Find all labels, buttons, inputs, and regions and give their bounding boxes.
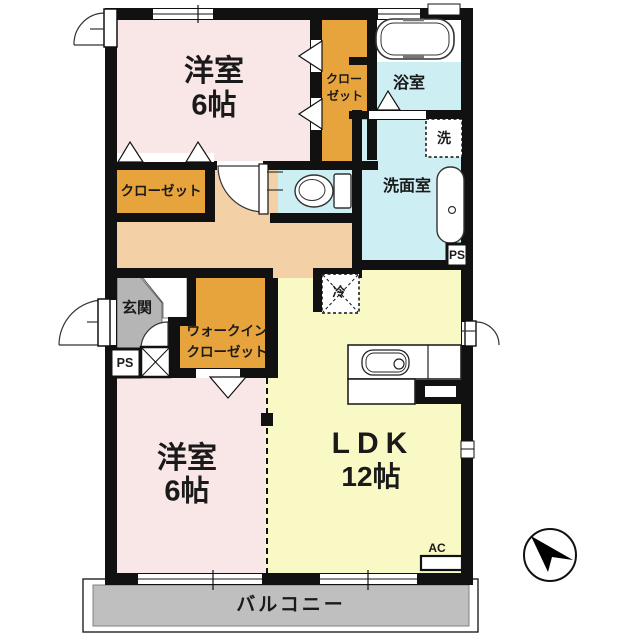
refrigerator-label: 冷 bbox=[332, 286, 345, 299]
wic-label-2: クローゼット bbox=[187, 345, 268, 359]
bedroom-top-label: 洋室 bbox=[184, 57, 244, 87]
toilet bbox=[295, 174, 351, 208]
bath-window bbox=[428, 4, 460, 15]
closet-top-label-1: クロー bbox=[326, 73, 362, 85]
bedroom-bottom-label: 洋室 bbox=[157, 444, 217, 474]
ac-label: AC bbox=[428, 542, 445, 554]
bathtub bbox=[376, 19, 454, 59]
north-arrow-icon bbox=[524, 529, 576, 581]
bath-label: 浴室 bbox=[393, 76, 425, 92]
kitchen-counter bbox=[348, 345, 461, 404]
laundry-label: 洗 bbox=[437, 131, 451, 145]
ldk-floor bbox=[265, 278, 461, 573]
floorplan-page: 洋室 6帖 クロー ゼット 浴室 洗 洗面室 クローゼット 玄関 PS PS ウ… bbox=[0, 0, 640, 640]
shoe-cabinet bbox=[141, 347, 170, 377]
ldk-size: 12帖 bbox=[341, 463, 400, 491]
bedroom-bottom-size: 6帖 bbox=[164, 478, 209, 507]
closet-top-label-2: ゼット bbox=[327, 90, 363, 102]
balcony-label: バルコニー bbox=[236, 596, 346, 615]
vanity-sink bbox=[437, 167, 464, 243]
wic-label-1: ウォークイン bbox=[187, 324, 268, 338]
ldk-floor-notch bbox=[362, 270, 461, 278]
bedroom-top-size: 6帖 bbox=[191, 92, 236, 121]
entrance-label: 玄関 bbox=[122, 301, 152, 316]
door-ldk-side bbox=[462, 321, 499, 346]
door-entrance bbox=[59, 299, 110, 346]
ldk-label: LDK bbox=[332, 429, 415, 459]
ps-entrance-label: PS bbox=[117, 357, 134, 370]
closet-hall-label: クローゼット bbox=[121, 184, 202, 198]
floorplan-drawing bbox=[0, 0, 640, 640]
ac-box bbox=[421, 556, 462, 570]
ps-washroom-label: PS bbox=[449, 249, 465, 261]
washroom-label: 洗面室 bbox=[383, 179, 431, 195]
door-top-left bbox=[74, 9, 117, 47]
